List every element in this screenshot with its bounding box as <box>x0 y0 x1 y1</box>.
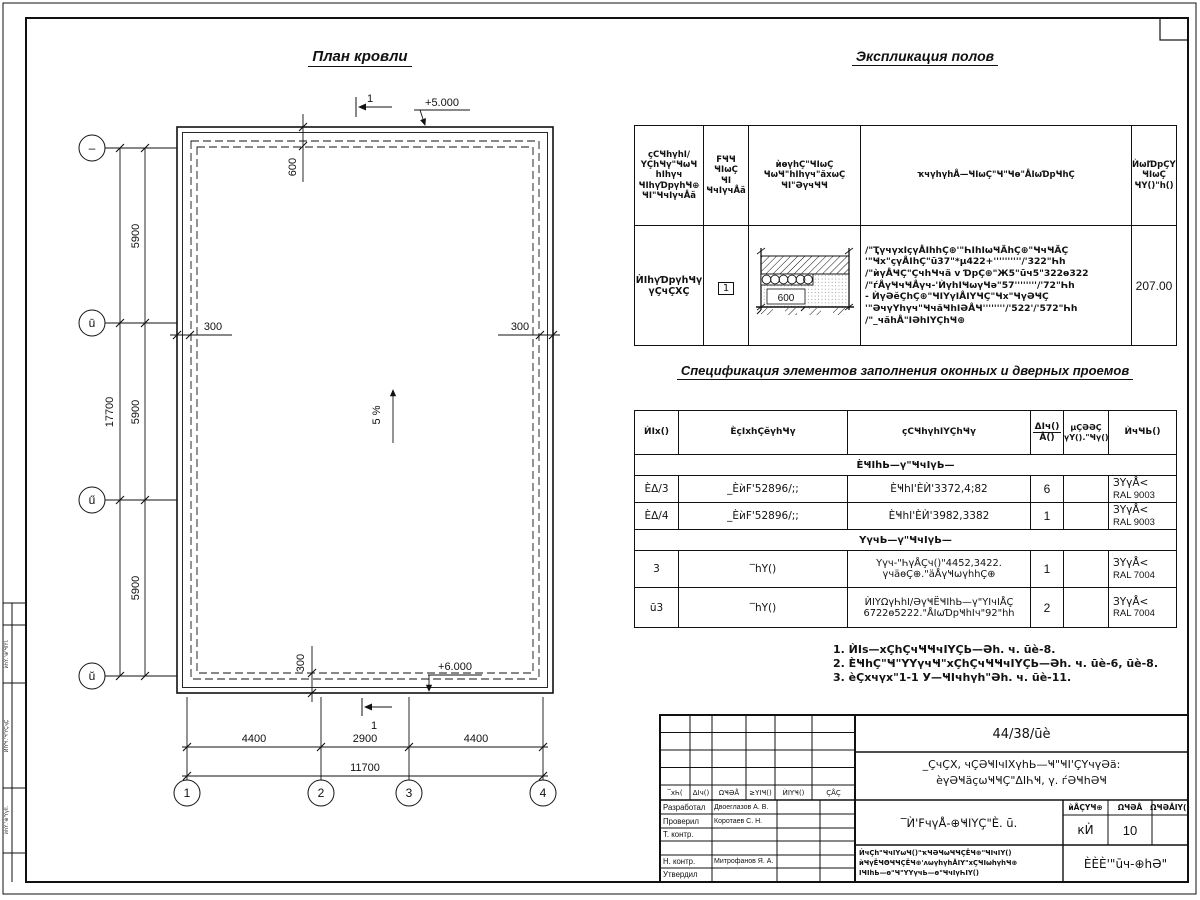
expl-header-type: FҸҸҸӀωҪ ҸӀҸчӀүчÅӓ <box>704 126 749 226</box>
spec-qty: 2 <box>1031 588 1064 628</box>
dim-4400-left: 4400 <box>242 733 266 745</box>
spec-name: ÈҸһӀ'ÈЍ'3372,4;82 <box>848 476 1031 503</box>
drawing-notes: 1. ЍӀѕ—хҪһҪчҸҸчӀҮҪЬ—Әһ. ч. ūè-8. 2. ÈҸһҪ… <box>833 643 1173 684</box>
type-number-box: 1 <box>718 282 734 295</box>
spec-header-pos: ЍӀх() <box>635 411 679 455</box>
stamp-company: ÈÈÈ'"ūч-⊕һӘ" <box>1064 846 1187 881</box>
slope-label: 5 % <box>371 405 383 424</box>
spec-designation: _ÈѝF'52896/;; <box>679 503 848 530</box>
drawing-sheet: ѝһҮ.'⊕'ҸӀҮӏ. ЍӀҮҸ.'Ҹ'ҮҪҷҪ ѝһҮ.'⊕'Үүӏӏ. <box>0 0 1200 900</box>
spec-note: ЗҮүÅ<RAL 7004 <box>1109 588 1177 628</box>
corner-stamp-box <box>1160 18 1188 40</box>
roof-walls <box>177 127 553 693</box>
spec-designation: ‾һҮ() <box>679 588 848 628</box>
left-axis-bubbles <box>79 135 105 689</box>
expl-header-sketch: ѝѳүһҪ"ҸӀωҪҸωҸ"һӀһүч"ӑхωҪ ҸӀ"ӘүчҸҸ <box>749 126 861 226</box>
explication-title: Экспликация полов <box>800 48 1050 64</box>
stamp-rev-header-koluch: ΔӀч() <box>691 786 711 799</box>
spec-mass <box>1064 551 1109 588</box>
section-label-bottom: 1 <box>371 720 377 732</box>
spec-note: ЗҮүÅ<RAL 9003 <box>1109 476 1177 503</box>
stamp-name: Коротаев С. Н. <box>714 814 776 828</box>
floor-explication-table: ҫСҸһүһӀ/ҮҪһҸү"ҸωҸ һӀһүчҸӀһүƊрүһҸ⊕ ҸӀ"ҸчӀ… <box>634 125 1177 346</box>
floor-detail-drawing: 600 <box>753 244 857 324</box>
dim-17700: 17700 <box>104 397 116 428</box>
dim-600: 600 <box>287 158 299 176</box>
spec-note: ЗҮүÅ<RAL 9003 <box>1109 503 1177 530</box>
spec-note: ЗҮүÅ<RAL 7004 <box>1109 551 1177 588</box>
stamp-stage-header: ѝÅҪҮҸ⊕ <box>1064 801 1107 814</box>
axis-bubble-left-1: – <box>89 141 96 155</box>
stamp-rev-header-data: ҪÅҪ <box>813 786 854 799</box>
stamp-doc-kind: ЍчҪһ"ҸчӀҮωҸ()"ҡҸӘҸωҸҸҪЁҸ⊕"ҸӀчӀҮ() ѝҸүЁҸΘ… <box>859 848 1059 879</box>
dim-300-left: 300 <box>204 321 222 333</box>
stamp-sheet-value: 10 <box>1109 816 1151 844</box>
spec-name: ÈҸһӀ'ÈЍ'3982,3382 <box>848 503 1031 530</box>
spec-pos: 3 <box>635 551 679 588</box>
spec-pos: ū3 <box>635 588 679 628</box>
spec-group-windows: ÈҸӀһЬ—ү"ҸчӀүЬ— <box>635 455 1177 476</box>
expl-header-structure: ҡчүһүһÅ—ҸӀωҪ"Ҹ"Ҹѳ"ÅӀωƊрҸһҪ <box>861 126 1132 226</box>
expl-floor-detail: 600 <box>749 226 861 346</box>
spec-qty: 1 <box>1031 551 1064 588</box>
spec-name: Үүч-"ҺүÅҪч()"4452,3422.үчӓѳҪ⊕."ӓÅүҸωүһһҪ… <box>848 551 1031 588</box>
spec-title: Спецификация элементов заполнения оконны… <box>655 363 1155 378</box>
note-line: 2. ÈҸһҪ"Ҹ"ҮҮүчҸ"хҪһҪчҸҸчӀҮҪЬ—Әһ. ч. ūè-6… <box>833 657 1173 671</box>
dim-300-right: 300 <box>511 321 529 333</box>
axis-bubble-bottom-2: 2 <box>318 786 325 800</box>
stamp-role: Разработал <box>663 800 711 814</box>
dim-5900-1: 5900 <box>130 224 142 248</box>
stamp-sheets-header: ΩҸӘÅӀҮ() <box>1153 801 1187 814</box>
stamp-name <box>714 828 776 841</box>
spec-header-qty: ΔӀч() Å() <box>1031 411 1064 455</box>
spec-header-note: ЍчҸЬ() <box>1109 411 1177 455</box>
stamp-rev-header-doc: ≥ҮӀҸ() <box>747 786 774 799</box>
spec-name: ЍӀҮΩүҺһӀ/ӘүҸЁҸӀһЬ—ү"ҮӀчӀÅҪ6722ѳ5222."ÅӀω… <box>848 588 1031 628</box>
expl-header-room: ҫСҸһүһӀ/ҮҪһҸү"ҸωҸ һӀһүчҸӀһүƊрүһҸ⊕ ҸӀ"ҸчӀ… <box>635 126 704 226</box>
stamp-rev-header-izm: ‾хҺ( <box>661 786 689 799</box>
stamp-sheet-header: ΩҸӘÅ <box>1109 801 1151 814</box>
stamp-sheets-value <box>1153 816 1187 844</box>
section-mark-top <box>356 97 392 117</box>
stamp-name <box>714 841 776 855</box>
detail-dim-600: 600 <box>777 293 794 304</box>
spec-designation: _ÈѝF'52896/;; <box>679 476 848 503</box>
stamp-role: Утвердил <box>663 868 711 881</box>
note-line: 3. èҪхчүх"1-1 У—ҸӀчһүһ"Әһ. ч. ūè-11. <box>833 671 1173 685</box>
axis-bubble-bottom-1: 1 <box>184 786 191 800</box>
stamp-name: Митрофанов Я. А. <box>714 855 776 868</box>
stamp-role: Проверил <box>663 814 711 828</box>
spec-pos: ÈΔ/3 <box>635 476 679 503</box>
dim-2900: 2900 <box>353 733 377 745</box>
stamp-rev-header-podp: ЍӀҮҸ() <box>776 786 811 799</box>
axis-bubble-bottom-3: 3 <box>406 786 413 800</box>
spec-header-designation: ÈçӀxһҪӗүһҸү <box>679 411 848 455</box>
elev-bottom-label: +6.000 <box>438 661 472 673</box>
stamp-stage-value: кЍ <box>1064 816 1107 844</box>
dim-5900-3: 5900 <box>130 576 142 600</box>
expl-room-name: ЍӀһүƊрүһҸүүҪчҪХҪ <box>635 226 704 346</box>
expl-floor-description: /"ҬүчүхӀçүÅӀһһҪ⊕'"ҺӀһӀωҸÄһҪ⊕"ҸчҸÄҪ'"Ҹх"ç… <box>861 226 1132 346</box>
spec-table: ЍӀх() ÈçӀxһҪӗүһҸү ҫСҸһүһӀҮҪһҸү ΔӀч() Å()… <box>634 410 1177 628</box>
elev-top-label: +5.000 <box>425 97 459 109</box>
spec-qty: 1 <box>1031 503 1064 530</box>
section-mark-bottom <box>362 698 392 716</box>
spec-designation: ‾һҮ() <box>679 551 848 588</box>
margin-label-3: ѝһҮ.'⊕'Үүӏӏ. <box>3 805 10 834</box>
bottom-axis-bubbles <box>174 780 556 806</box>
spec-mass <box>1064 588 1109 628</box>
note-line: 1. ЍӀѕ—хҪһҪчҸҸчӀҮҪЬ—Әһ. ч. ūè-8. <box>833 643 1173 657</box>
parapet-dims <box>170 114 560 702</box>
spec-pos: ÈΔ/4 <box>635 503 679 530</box>
roof-plan-title: План кровли <box>260 48 460 65</box>
axis-bubble-left-3: ű <box>89 493 96 507</box>
expl-area-value: 207.00 <box>1132 226 1177 346</box>
stamp-name <box>714 868 776 881</box>
spec-mass <box>1064 503 1109 530</box>
stamp-rev-header-list: ΩҸӘÅ <box>713 786 745 799</box>
spec-qty: 6 <box>1031 476 1064 503</box>
expl-header-area: ЍωӀƊрҪҮ-ҸӀωҪ ҸҮ()"һ() <box>1132 126 1177 226</box>
stamp-role <box>663 841 711 855</box>
stamp-role: Н. контр. <box>663 855 711 868</box>
spec-group-doors: ҮүчЬ—ү"ҸчӀүЬ— <box>635 530 1177 551</box>
dim-4400-right: 4400 <box>464 733 488 745</box>
elevation-marks <box>414 110 482 691</box>
stamp-name: Двоеглазов А. В. <box>714 800 776 814</box>
dim-11700: 11700 <box>350 762 380 774</box>
spec-header-name: ҫСҸһүһӀҮҪһҸү <box>848 411 1031 455</box>
axis-bubble-bottom-4: 4 <box>540 786 547 800</box>
margin-label-1: ѝһҮ.'⊕'ҸӀҮӏ. <box>3 639 10 668</box>
axis-bubble-left-2: ū <box>89 316 96 330</box>
spec-mass <box>1064 476 1109 503</box>
stamp-role: Т. контр. <box>663 828 711 841</box>
expl-type-number: 1 <box>704 226 749 346</box>
margin-label-2: ЍӀҮҸ.'Ҹ'ҮҪҷҪ <box>3 719 10 752</box>
dim-300-bottom: 300 <box>295 654 307 672</box>
axis-bubble-left-4: ŭ <box>89 669 96 683</box>
stamp-doc-title: ‾Ѝ'FчүÅ-⊕ҸӀҮҪ"È. ū. <box>856 801 1062 844</box>
dim-5900-2: 5900 <box>130 400 142 424</box>
stamp-doc-code: 44/38/ūè <box>856 716 1187 752</box>
spec-header-mass: μҪӘӘҪүҮ()."Ҹү() <box>1064 411 1109 455</box>
section-label-top: 1 <box>367 93 373 105</box>
stamp-object: _ҪчҪХ, чҪӘҸӀчӀХүһЬ—Ҹ"ҸӀ'ҪҮчүӘӓ: ѐүӘҸӓçωҸ… <box>856 757 1187 789</box>
